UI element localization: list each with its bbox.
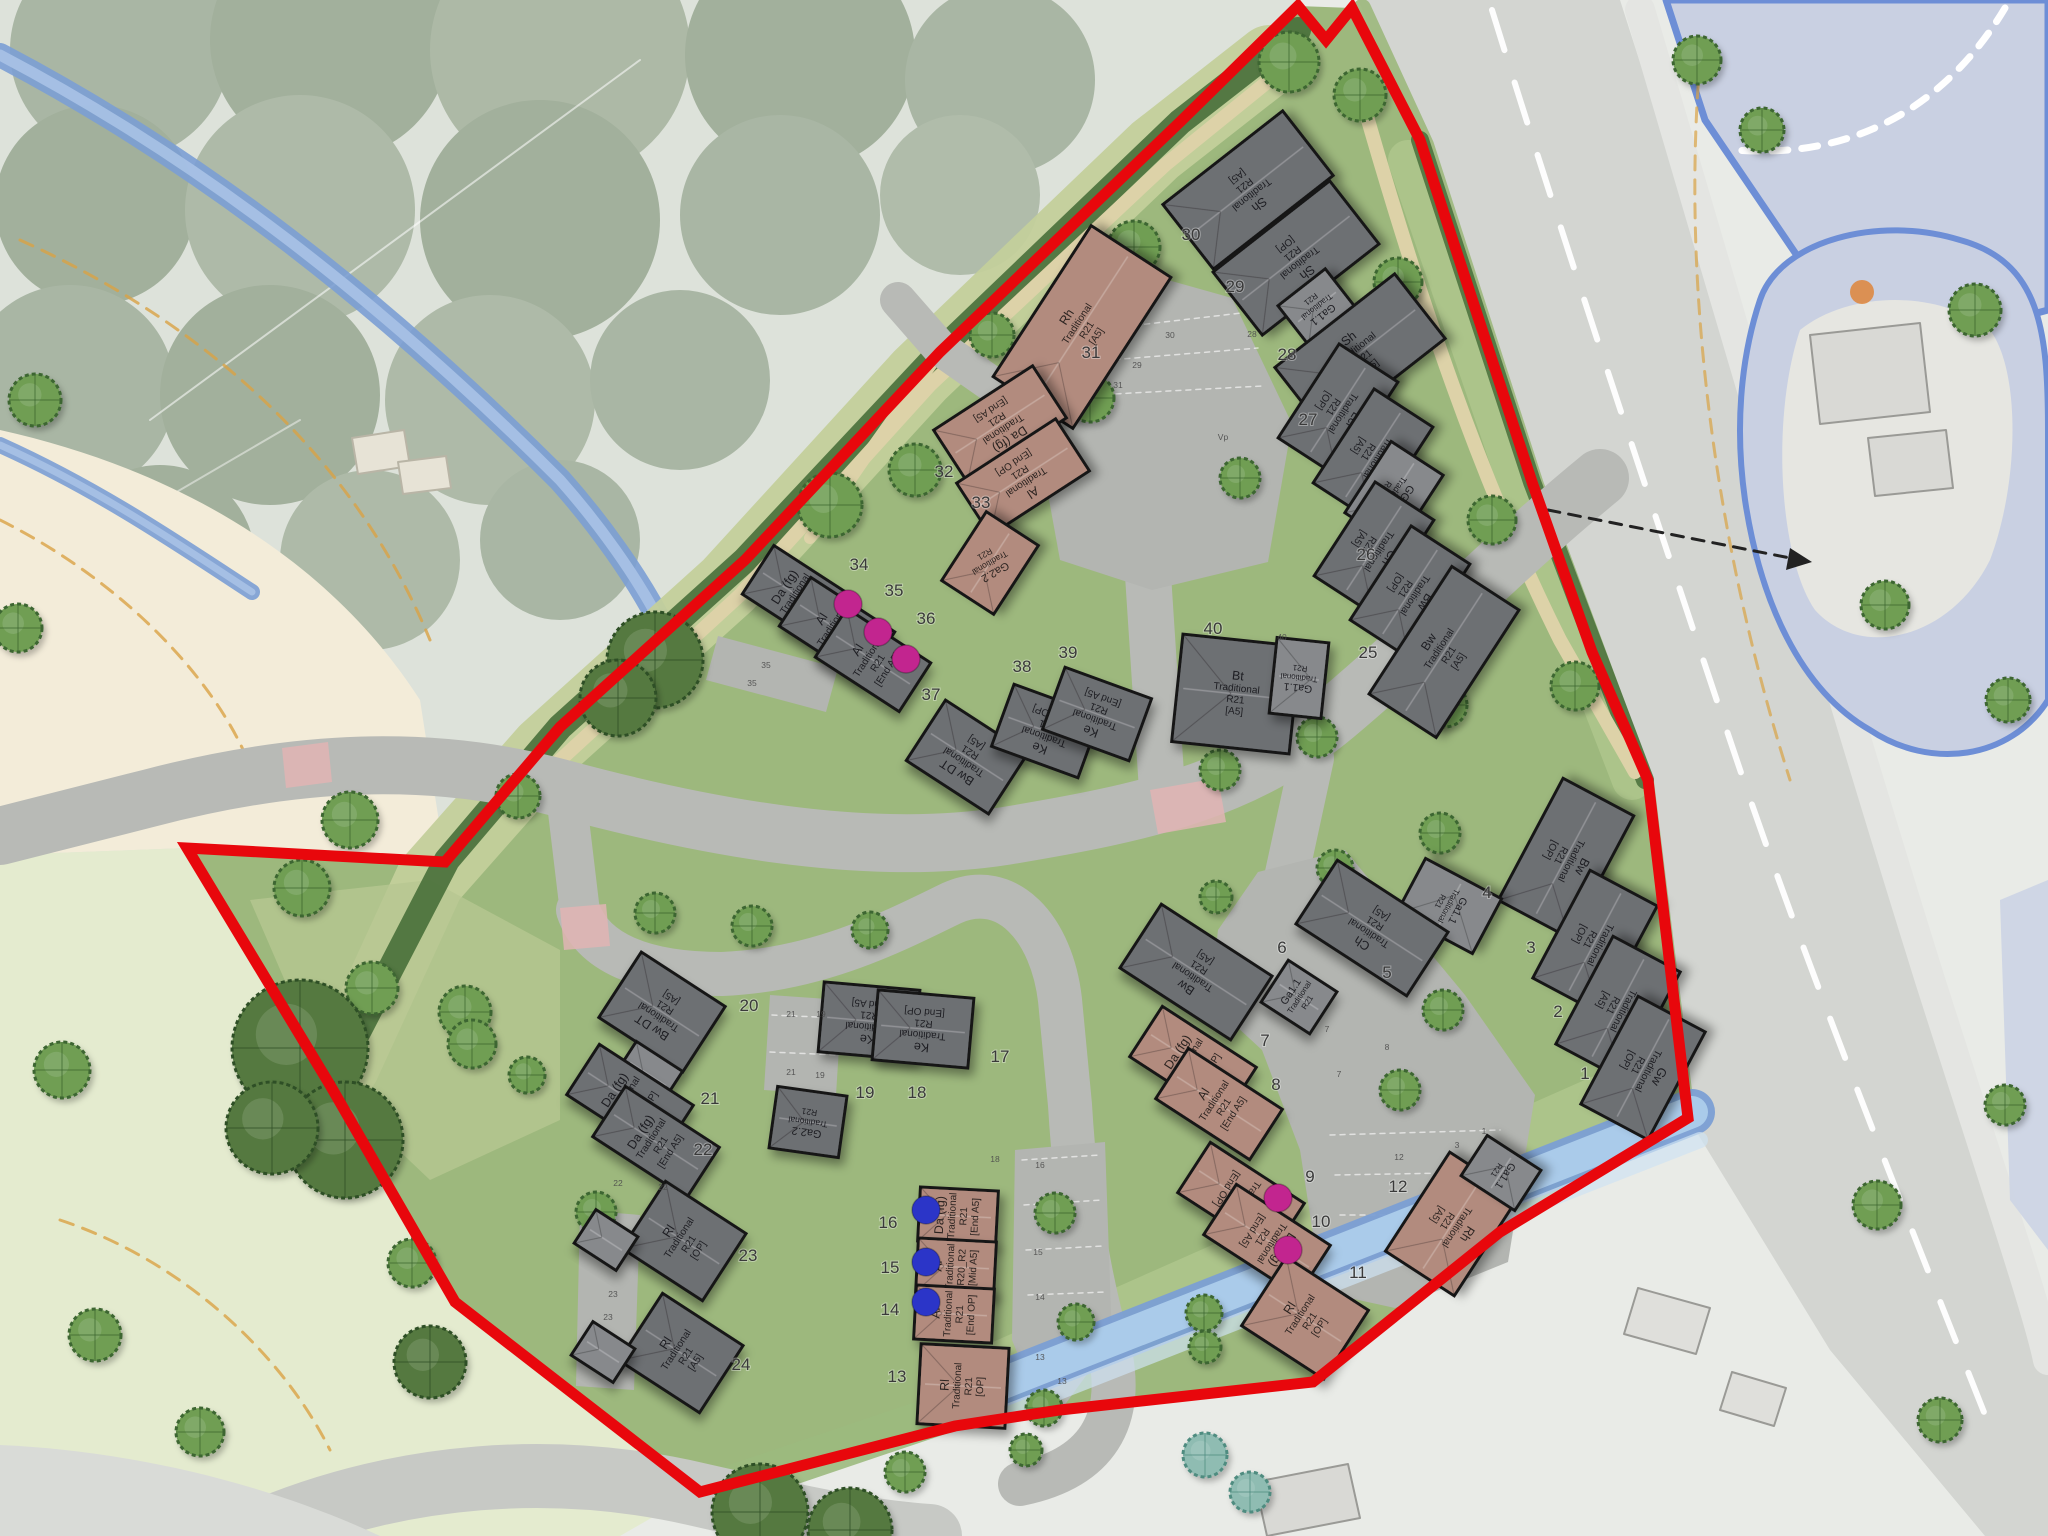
plot-number-27: 27 bbox=[1299, 410, 1318, 429]
tree-icon bbox=[852, 912, 888, 948]
parking-bay-label: 22 bbox=[658, 1182, 668, 1192]
parking-bay-label: 23 bbox=[603, 1312, 613, 1322]
plot-number-36: 36 bbox=[917, 609, 936, 628]
parking-bay-label: 14 bbox=[1035, 1292, 1045, 1302]
plot-number-30: 30 bbox=[1182, 225, 1201, 244]
plot-number-6: 6 bbox=[1277, 938, 1286, 957]
existing-building-moat bbox=[1810, 323, 1930, 424]
plot-number-29: 29 bbox=[1226, 277, 1245, 296]
unit-marker-dot bbox=[864, 618, 892, 646]
tree-icon bbox=[1740, 108, 1784, 152]
parking-bay-label: 13 bbox=[1057, 1376, 1067, 1386]
plot-number-4: 4 bbox=[1482, 883, 1491, 902]
parking-bay-label: 28 bbox=[1247, 329, 1257, 339]
parking-bay-label: 12 bbox=[1394, 1152, 1404, 1162]
parking-bay-label: 16 bbox=[1035, 1160, 1045, 1170]
plot-number-5: 5 bbox=[1382, 963, 1391, 982]
tree-icon bbox=[732, 906, 772, 946]
tree-icon bbox=[274, 860, 330, 916]
tree-icon bbox=[1551, 662, 1599, 710]
plot-number-8: 8 bbox=[1271, 1075, 1280, 1094]
tree-icon bbox=[1035, 1193, 1075, 1233]
plot-number-15: 15 bbox=[881, 1258, 900, 1277]
site-plan-map: ShTraditionalR21[A5]ShTraditionalR21[OP]… bbox=[0, 0, 2048, 1536]
plot-number-28: 28 bbox=[1278, 345, 1297, 364]
parking-bay-label: 35 bbox=[761, 660, 771, 670]
plot-number-22: 22 bbox=[694, 1140, 713, 1159]
tree-icon bbox=[1058, 1304, 1094, 1340]
plot-number-12: 12 bbox=[1389, 1177, 1408, 1196]
tree-icon bbox=[1230, 1472, 1270, 1512]
unit-marker-dot bbox=[1264, 1184, 1292, 1212]
tree-icon bbox=[1949, 284, 2001, 336]
tree-icon bbox=[1853, 1181, 1901, 1229]
tree-icon bbox=[1010, 1434, 1042, 1466]
plot-number-34: 34 bbox=[850, 555, 869, 574]
parking-bay-label: 13 bbox=[1035, 1352, 1045, 1362]
plot-number-1: 1 bbox=[1580, 1064, 1589, 1083]
tree-icon bbox=[635, 893, 675, 933]
plot-number-7: 7 bbox=[1260, 1031, 1269, 1050]
parking-bay-label: 1 bbox=[1482, 1126, 1487, 1136]
existing-building-nw bbox=[398, 456, 451, 494]
tree-icon bbox=[1986, 678, 2030, 722]
road-north-link bbox=[1148, 575, 1163, 805]
plot-number-17: 17 bbox=[991, 1047, 1010, 1066]
unit-marker-dot bbox=[892, 645, 920, 673]
plot-number-25: 25 bbox=[1359, 643, 1378, 662]
tree-icon bbox=[1183, 1433, 1227, 1477]
plot-number-23: 23 bbox=[739, 1246, 758, 1265]
plot-number-35: 35 bbox=[885, 581, 904, 600]
plot-number-38: 38 bbox=[1013, 657, 1032, 676]
parking-bay-label: 7 bbox=[1337, 1069, 1342, 1079]
tree-icon bbox=[226, 1082, 318, 1174]
plot-number-39: 39 bbox=[1059, 643, 1078, 662]
parking-bay-label: 21 bbox=[786, 1067, 796, 1077]
plot-number-20: 20 bbox=[740, 996, 759, 1015]
tree-icon bbox=[1189, 1331, 1221, 1363]
plot-number-33: 33 bbox=[972, 493, 991, 512]
plot-number-16: 16 bbox=[879, 1213, 898, 1232]
tree-icon bbox=[69, 1309, 121, 1361]
plot-number-11: 11 bbox=[1349, 1263, 1367, 1282]
moat-accent-orange bbox=[1850, 280, 1874, 304]
parking-bay-label: 8 bbox=[1385, 1042, 1390, 1052]
tree-icon bbox=[1380, 1070, 1420, 1110]
tree-icon bbox=[1334, 69, 1386, 121]
canopy-blob bbox=[680, 115, 880, 315]
plot-number-9: 9 bbox=[1305, 1167, 1314, 1186]
tree-icon bbox=[1468, 496, 1516, 544]
tree-icon bbox=[1200, 881, 1232, 913]
plot-number-37: 37 bbox=[922, 685, 941, 704]
unit-marker-dot bbox=[1274, 1236, 1302, 1264]
unit-marker-dot bbox=[834, 590, 862, 618]
tree-icon bbox=[448, 1020, 496, 1068]
plot-number-21: 21 bbox=[701, 1089, 720, 1108]
parking-bay-label: 3 bbox=[1455, 1140, 1460, 1150]
existing-building-moat bbox=[1868, 430, 1953, 496]
tree-icon bbox=[394, 1326, 466, 1398]
plot-number-40: 40 bbox=[1204, 619, 1223, 638]
tree-icon bbox=[176, 1408, 224, 1456]
unit-marker-dot bbox=[912, 1248, 940, 1276]
tree-icon bbox=[1200, 750, 1240, 790]
plot-number-19: 19 bbox=[856, 1083, 875, 1102]
tree-icon bbox=[1423, 990, 1463, 1030]
tree-icon bbox=[9, 374, 61, 426]
parking-bay-label: Vp bbox=[1218, 432, 1229, 442]
parking-bay-label: 22 bbox=[613, 1178, 623, 1188]
parking-bay-label: 15 bbox=[1033, 1247, 1043, 1257]
tree-icon bbox=[34, 1042, 90, 1098]
parking-bay-label: 30 bbox=[1165, 330, 1175, 340]
parking-bay-label: 23 bbox=[608, 1289, 618, 1299]
parking-bay-label: 29 bbox=[1132, 360, 1142, 370]
tree-icon bbox=[1420, 813, 1460, 853]
plot-number-24: 24 bbox=[732, 1355, 751, 1374]
plot-number-26: 26 bbox=[1357, 545, 1376, 564]
parking-bay-label: 35 bbox=[747, 678, 757, 688]
tree-icon bbox=[1861, 581, 1909, 629]
parking-bay-label: 7 bbox=[1325, 1024, 1330, 1034]
tree-icon bbox=[889, 444, 941, 496]
parking-bay-label: 31 bbox=[1113, 380, 1123, 390]
parking-bay-label: 40 bbox=[1277, 632, 1287, 642]
plot-number-2: 2 bbox=[1553, 1002, 1562, 1021]
parking-bay-label: 19 bbox=[816, 1009, 826, 1019]
unit-marker-dot bbox=[912, 1196, 940, 1224]
tree-icon bbox=[885, 1452, 925, 1492]
plot-number-14: 14 bbox=[881, 1300, 900, 1319]
plot-number-10: 10 bbox=[1312, 1212, 1331, 1231]
plot-number-32: 32 bbox=[935, 462, 954, 481]
tree-icon bbox=[1297, 717, 1337, 757]
tree-icon bbox=[1186, 1295, 1222, 1331]
tree-icon bbox=[322, 792, 378, 848]
plot-number-3: 3 bbox=[1526, 938, 1535, 957]
tree-icon bbox=[1673, 36, 1721, 84]
tree-icon bbox=[1985, 1085, 2025, 1125]
tree-icon bbox=[798, 473, 862, 537]
plot-number-31: 31 bbox=[1082, 343, 1101, 362]
crossing-pink bbox=[282, 742, 332, 788]
tree-icon bbox=[1918, 1398, 1962, 1442]
parking-bay-label: 18 bbox=[990, 1154, 1000, 1164]
tree-icon bbox=[509, 1057, 545, 1093]
tree-icon bbox=[1220, 458, 1260, 498]
plot-number-13: 13 bbox=[888, 1367, 907, 1386]
canopy-blob bbox=[590, 290, 770, 470]
crossing-pink bbox=[560, 904, 610, 950]
plot-number-18: 18 bbox=[908, 1083, 927, 1102]
parking-bay-label: 19 bbox=[815, 1070, 825, 1080]
unit-marker-dot bbox=[912, 1288, 940, 1316]
parking-bay-label: 21 bbox=[786, 1009, 796, 1019]
masterplan-canvas: ShTraditionalR21[A5]ShTraditionalR21[OP]… bbox=[0, 0, 2048, 1536]
canopy-blob bbox=[0, 105, 195, 305]
